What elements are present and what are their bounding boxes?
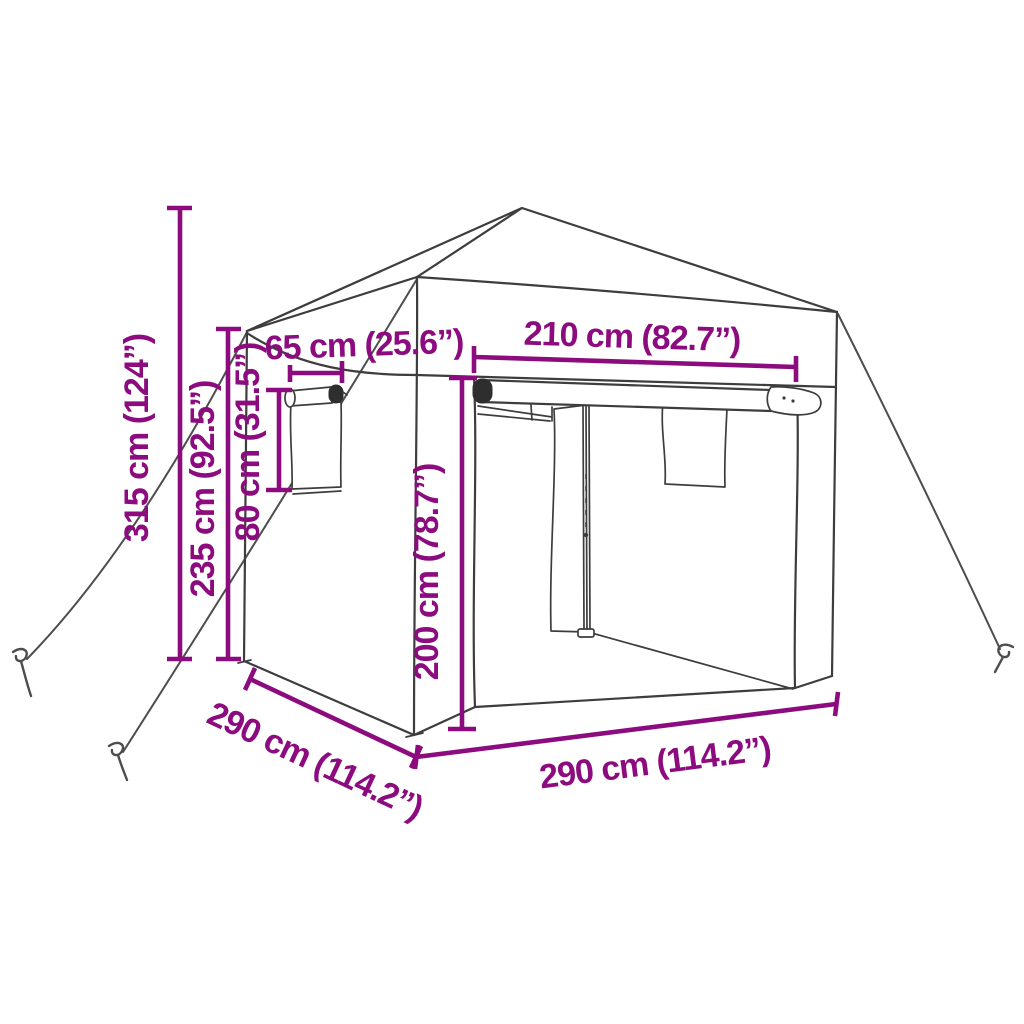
window-roll-nub [343,392,347,395]
dimension-inner-height: 200 cm (78.7”) [408,378,477,729]
hanging-window-flap [662,402,727,487]
dimension-window-height: 80 cm (31.5”) [229,343,292,542]
window-flap-hem [293,491,341,494]
front-left-fabric-edge [474,377,476,707]
rope-right [838,314,1000,649]
dimension-label-inner-height: 200 cm (78.7”) [408,464,446,681]
dimension-label-door-width: 210 cm (82.7”) [523,315,741,360]
front-ground-edge [475,688,795,707]
dimension-total-height: 315 cm (124”) [118,208,192,659]
guy-ropes [27,279,1000,752]
roof [247,208,837,331]
dimension-label-window-height: 80 cm (31.5”) [229,343,267,542]
dimension-label-eave-height: 235 cm (92.5”) [184,381,222,598]
dimension-diagram: 315 cm (124”) 235 cm (92.5”) 80 cm (31.5… [0,0,1024,1024]
dimension-label-front-width: 290 cm (114.2”) [537,730,773,797]
right-bottom-edge [795,676,832,688]
door-roll-stud [791,399,794,402]
roof-ridge-front-left [417,208,522,277]
ground-pegs [13,645,1013,780]
zipper-pull [584,533,588,537]
interior [551,395,793,689]
dimension-label-window-width: 65 cm (25.6”) [264,323,464,368]
peg-right [995,645,1013,672]
gazebo-line-art [13,208,1013,780]
right-fabric-edge [795,391,798,688]
dimension-window-width: 65 cm (25.6”) [264,323,464,383]
door-roll-left-rail [478,405,552,421]
door-roll-stud [782,396,785,399]
peg-rear-left [13,649,31,696]
left-curtain-panel [551,405,587,632]
window-roll-right-cap [329,385,343,403]
center-pole-foot [578,629,594,637]
roof-outer-edges [247,208,837,331]
interior-back-bottom-edge [588,632,793,689]
right-outer-edge [832,312,837,676]
door-roll-left-cap [473,379,492,403]
dimension-label-side-depth: 290 cm (114.2”) [202,695,429,828]
roof-front-eave [417,277,837,312]
window-flap [290,402,341,489]
dimension-label-total-height: 315 cm (124”) [118,334,156,542]
dimension-door-width: 210 cm (82.7”) [474,315,796,382]
side-window [285,385,347,494]
